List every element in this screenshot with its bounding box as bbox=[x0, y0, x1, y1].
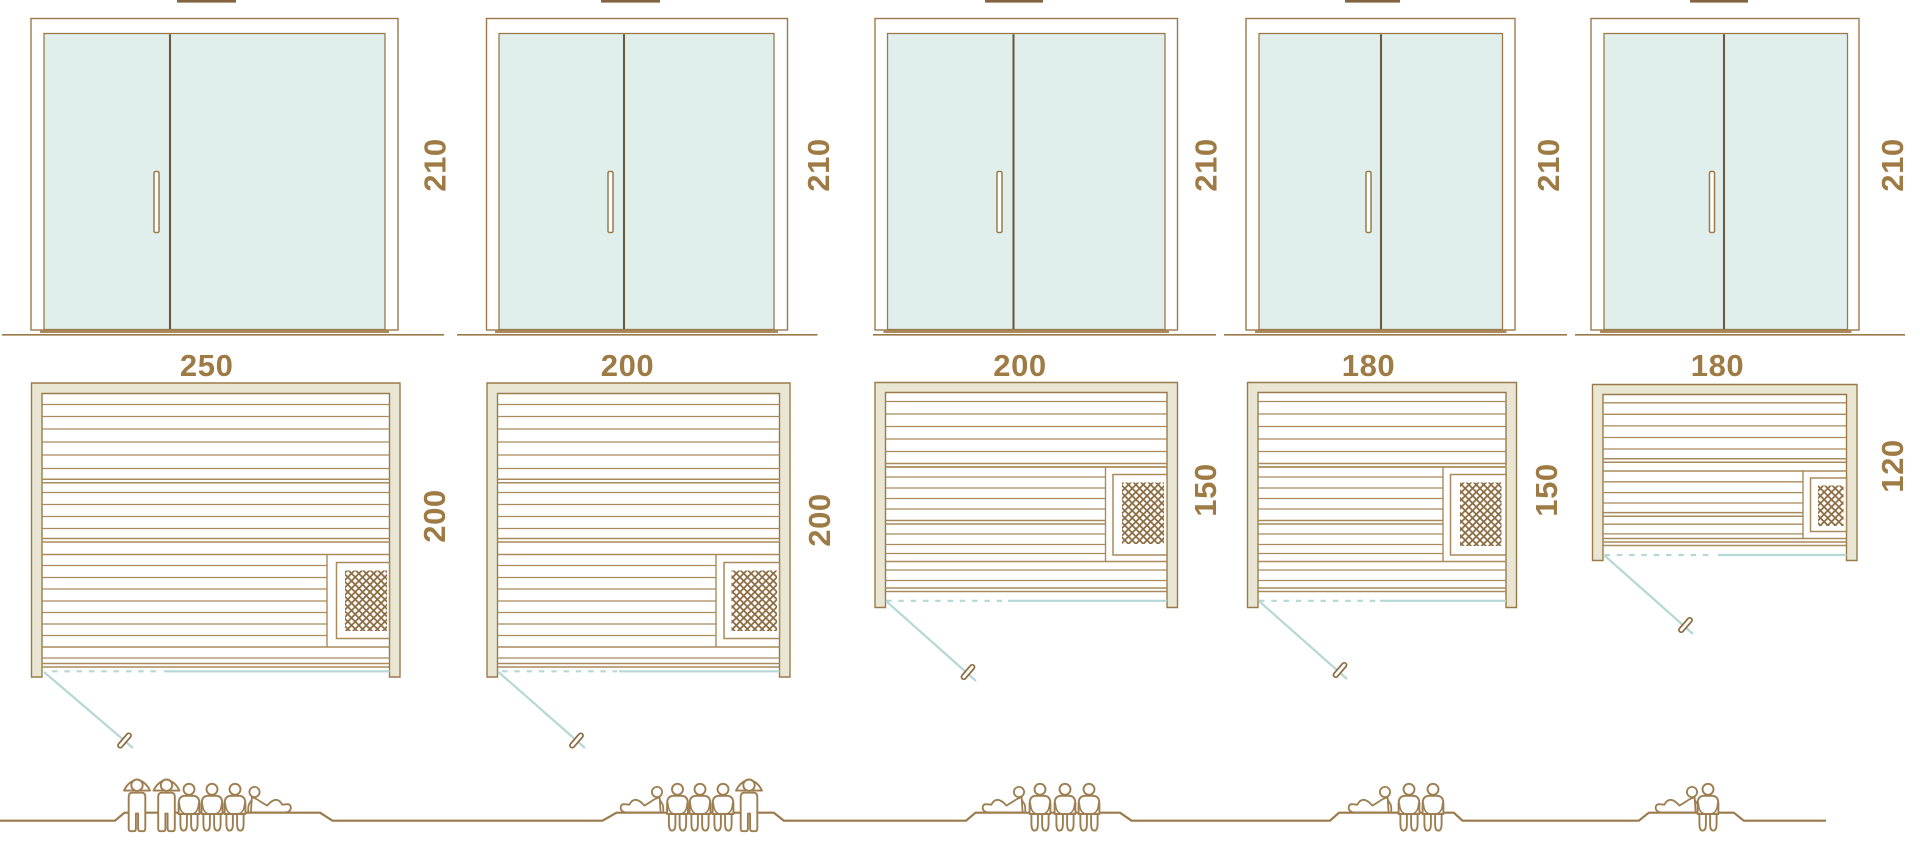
svg-text:210: 210 bbox=[801, 138, 836, 192]
svg-text:200: 200 bbox=[802, 493, 837, 547]
svg-text:210: 210 bbox=[1531, 138, 1566, 192]
svg-text:250: 250 bbox=[180, 348, 234, 383]
svg-text:210: 210 bbox=[1189, 138, 1224, 192]
svg-text:180: 180 bbox=[1691, 348, 1745, 383]
svg-text:150: 150 bbox=[1188, 463, 1223, 517]
svg-text:150: 150 bbox=[1529, 463, 1564, 517]
svg-text:200: 200 bbox=[601, 348, 655, 383]
svg-text:180: 180 bbox=[1342, 348, 1396, 383]
svg-text:120: 120 bbox=[1875, 439, 1910, 493]
svg-text:200: 200 bbox=[993, 348, 1047, 383]
svg-text:210: 210 bbox=[1875, 138, 1910, 192]
svg-text:210: 210 bbox=[418, 138, 453, 192]
svg-text:200: 200 bbox=[417, 489, 452, 543]
